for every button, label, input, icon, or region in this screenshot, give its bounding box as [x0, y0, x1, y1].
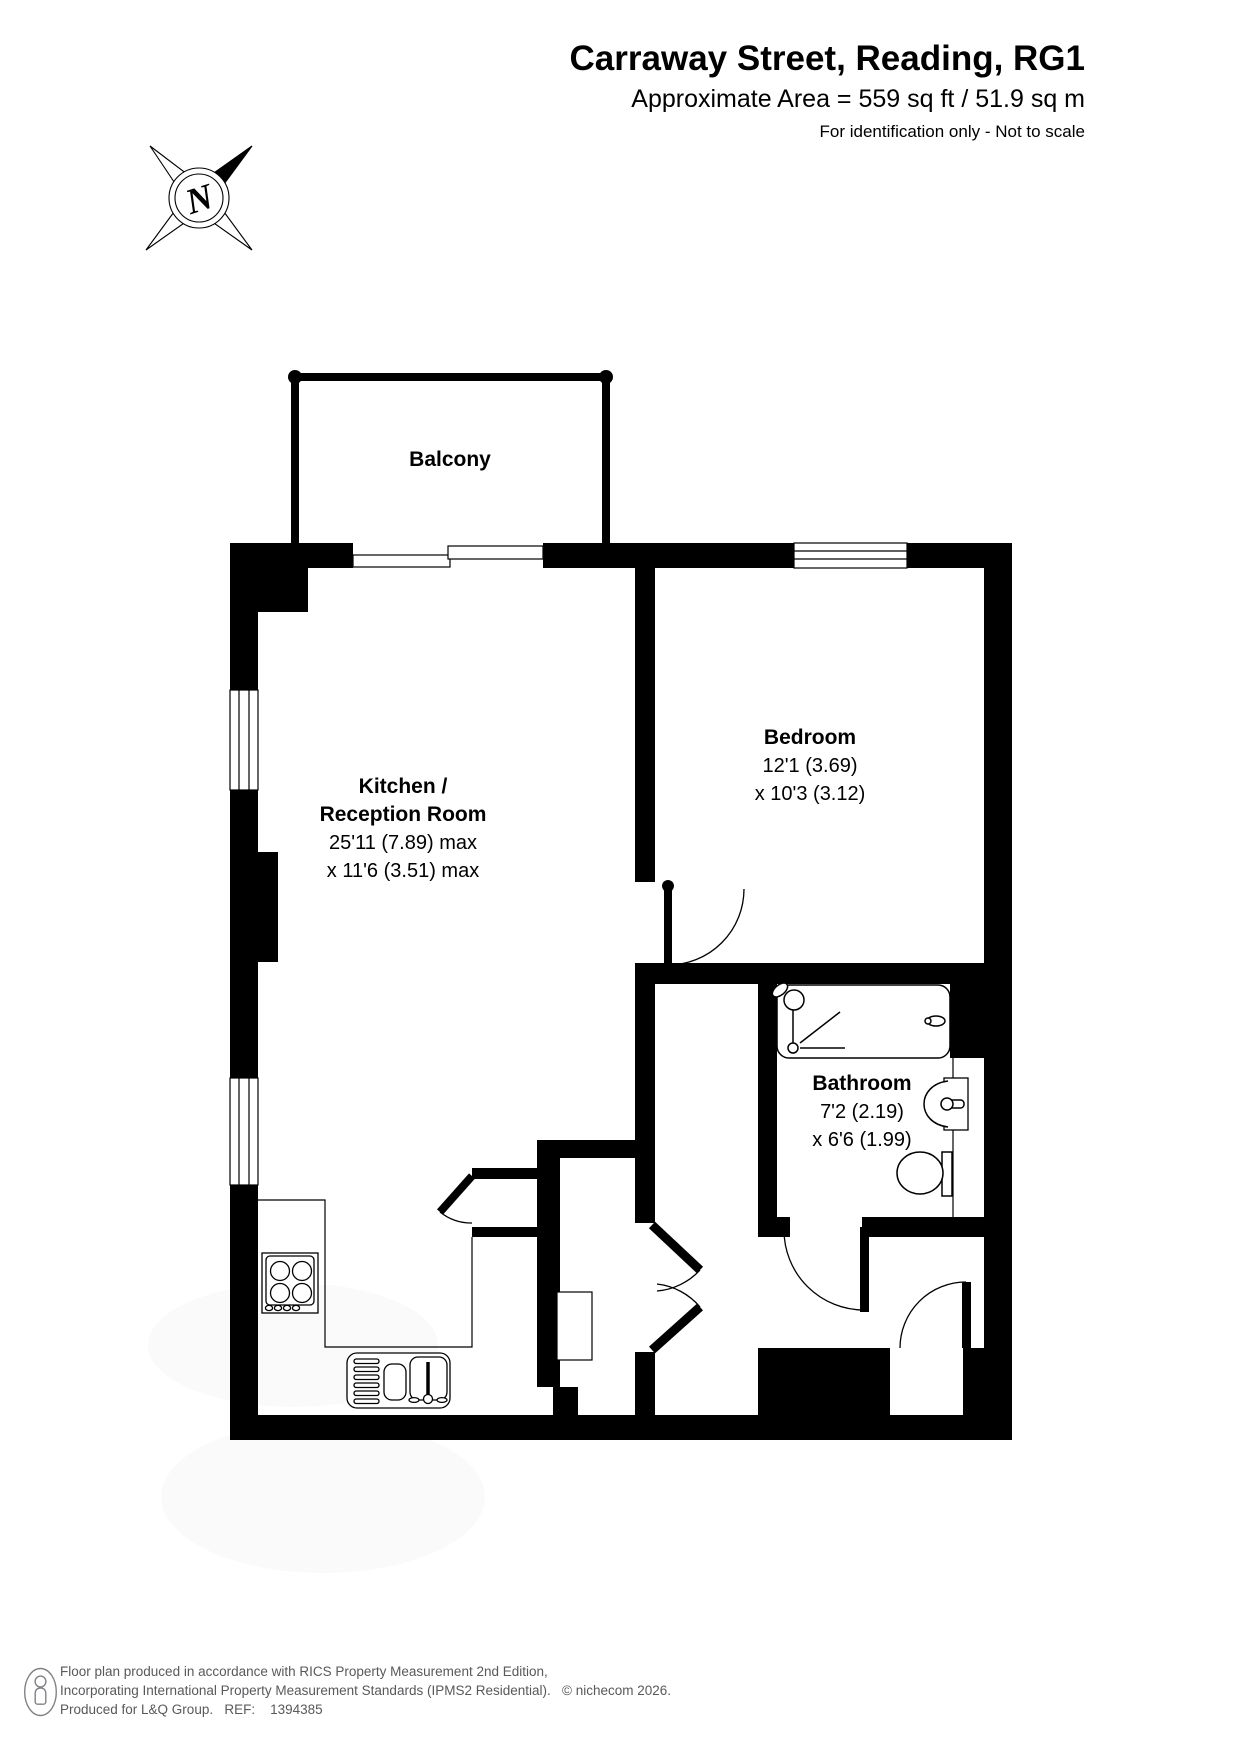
closet-door-leaf-upper	[652, 1225, 700, 1270]
wall-kitchen-bedroom	[635, 568, 655, 882]
bedroom-door-leaf	[664, 889, 672, 965]
wall-bathtub-nook	[950, 984, 984, 1058]
bathroom-sink	[924, 1078, 968, 1130]
drainer-groove	[354, 1367, 379, 1372]
bathtub-tap	[784, 990, 804, 1010]
sink-tap	[941, 1098, 953, 1110]
closet-bifold-doors	[652, 1225, 700, 1350]
drainer-groove	[354, 1359, 379, 1364]
drainer-groove	[354, 1383, 379, 1388]
entrance-door-leaf	[962, 1282, 971, 1348]
sink-tap-handle-left	[409, 1398, 419, 1403]
person-scale-icon	[23, 1667, 59, 1719]
stove-knob	[283, 1305, 290, 1310]
bathtub	[770, 980, 950, 1058]
kitchen-sink-unit	[347, 1353, 450, 1408]
wall-left-pier-mid	[230, 852, 278, 962]
wall-hall-bottom-stub	[635, 1352, 655, 1440]
stove-knob	[292, 1305, 299, 1310]
drainer-groove	[354, 1375, 379, 1380]
bathroom-dimensions-line1: 7'2 (2.19)	[812, 1098, 911, 1126]
footer-disclaimer: Floor plan produced in accordance with R…	[60, 1663, 671, 1719]
bathroom-dimensions-line2: x 6'6 (1.99)	[812, 1126, 911, 1154]
balcony-name: Balcony	[409, 446, 491, 474]
wall-left	[230, 543, 258, 1440]
bedroom-label: Bedroom 12'1 (3.69) x 10'3 (3.12)	[755, 724, 866, 808]
footer-line-2: Incorporating International Property Mea…	[60, 1682, 671, 1701]
floor-plan-drawing: N	[0, 0, 1241, 1755]
wall-left-pier-top	[230, 568, 308, 612]
kitchen-dimensions-metric: x 11'6 (3.51) max	[320, 857, 487, 885]
kitchen-dimensions-imperial: 25'11 (7.89) max	[320, 829, 487, 857]
kitchen-window-lower	[230, 1078, 258, 1185]
kitchen-hall-door-swing	[440, 1212, 472, 1223]
wall-bathroom-bottom-left	[758, 1217, 790, 1237]
bedroom-name: Bedroom	[755, 724, 866, 752]
toilet-bowl	[897, 1152, 943, 1194]
bathroom-door	[784, 1227, 869, 1312]
stove	[262, 1253, 318, 1313]
balcony-corner-post-right	[599, 370, 613, 384]
bedroom-door	[662, 880, 744, 965]
wall-kitchen-door-stub-bottom	[472, 1227, 560, 1237]
wall-closet-top-stub	[537, 1140, 635, 1158]
balcony-wall-right	[602, 373, 610, 543]
bathroom-label: Bathroom 7'2 (2.19) x 6'6 (1.99)	[812, 1070, 911, 1154]
wall-bottom-entrance-block	[758, 1348, 890, 1415]
bedroom-dimensions-line1: 12'1 (3.69)	[755, 752, 866, 780]
kitchen-name-line1: Kitchen /	[320, 773, 487, 801]
entrance-door-swing	[900, 1282, 966, 1348]
bedroom-dimensions-line2: x 10'3 (3.12)	[755, 780, 866, 808]
patio-door-panel-outer	[353, 555, 450, 567]
bathroom-door-swing	[784, 1230, 864, 1310]
stove-burner	[271, 1284, 290, 1303]
bedroom-door-swing	[668, 889, 744, 965]
sink-tap-base	[424, 1395, 433, 1404]
kitchen-label: Kitchen / Reception Room 25'11 (7.89) ma…	[320, 773, 487, 885]
stove-knob	[274, 1305, 281, 1310]
drainer-groove	[354, 1399, 379, 1404]
compass-rose-icon: N	[146, 146, 252, 250]
patio-door-panel-inner	[448, 546, 543, 559]
footer-line-3: Produced for L&Q Group. REF: 1394385	[60, 1701, 671, 1720]
kitchen-hall-door	[440, 1176, 472, 1223]
wall-kitchen-door-stub-top	[472, 1168, 560, 1179]
balcony-corner-post-left	[288, 370, 302, 384]
closet-door-leaf-lower	[652, 1307, 700, 1350]
bathroom-door-leaf	[860, 1227, 869, 1312]
wall-right	[984, 543, 1012, 1440]
stove-burner	[271, 1262, 290, 1281]
bedroom-window	[794, 543, 907, 568]
closet-door-swing-upper	[657, 1270, 700, 1291]
kitchen-window-upper	[230, 690, 258, 790]
stove-burner	[293, 1262, 312, 1281]
wall-closet-left-foot	[553, 1387, 578, 1415]
balcony-wall-left	[291, 373, 299, 543]
wall-bottom	[230, 1415, 1012, 1440]
drainer-groove	[354, 1391, 379, 1396]
sink-tap-handle-right	[437, 1398, 447, 1403]
wall-bathroom-left	[758, 977, 777, 1237]
balcony-wall-top	[291, 373, 610, 381]
stove-burner	[293, 1284, 312, 1303]
balcony-label: Balcony	[409, 446, 491, 474]
wall-bottom-right-corner	[963, 1348, 1012, 1440]
stove-knob	[265, 1305, 272, 1310]
bathtub-spout-knob	[925, 1018, 931, 1024]
kitchen-name-line2: Reception Room	[320, 801, 487, 829]
entrance-door	[900, 1282, 971, 1348]
wall-bedroom-bathroom	[635, 963, 984, 984]
wall-bathroom-bottom-right	[862, 1217, 984, 1237]
toilet	[897, 1152, 952, 1196]
floorplan-page: Carraway Street, Reading, RG1 Approximat…	[0, 0, 1241, 1755]
closet-door-swing-lower	[657, 1284, 700, 1307]
kitchen-hall-door-leaf	[440, 1176, 472, 1212]
wall-kitchen-hall	[635, 984, 655, 1223]
bathroom-name: Bathroom	[812, 1070, 911, 1098]
footer-line-1: Floor plan produced in accordance with R…	[60, 1663, 671, 1682]
hall-cupboard	[557, 1292, 592, 1360]
sink-drainer-tray	[384, 1364, 406, 1400]
